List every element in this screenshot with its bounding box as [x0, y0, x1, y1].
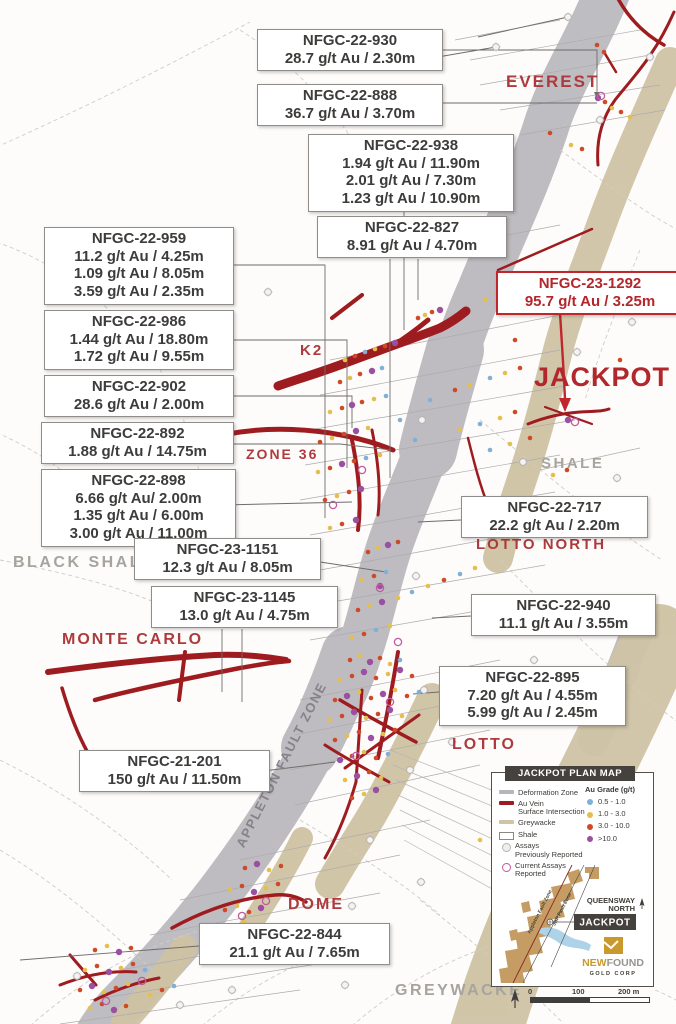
- greywacke-swatch-icon: [499, 820, 514, 824]
- assay-dot: [111, 1007, 117, 1013]
- callout-hole-id: NFGC-23-1292: [504, 275, 676, 293]
- callout-hole-id: NFGC-23-1145: [158, 589, 331, 607]
- assay-dot: [353, 428, 359, 434]
- assay-dot: [513, 338, 518, 343]
- callout-assay-line: 21.1 g/t Au / 7.65m: [206, 944, 383, 962]
- previous-assay-marker-icon: [627, 317, 636, 326]
- current-assay-marker-icon: [358, 466, 365, 473]
- callout-hole-id: NFGC-22-959: [51, 230, 227, 248]
- assay-dot: [353, 517, 359, 523]
- assay-dot: [513, 410, 518, 415]
- callout-NFGC-23-1292: NFGC-23-129295.7 g/t Au / 3.25m: [496, 271, 676, 315]
- assay-dot: [595, 43, 600, 48]
- assay-dot: [316, 470, 321, 475]
- assay-dot: [360, 400, 365, 405]
- callout-NFGC-22-930: NFGC-22-93028.7 g/t Au / 2.30m: [257, 29, 443, 71]
- assay-dot: [338, 678, 343, 683]
- legend-item-assay-prev: AssaysPreviously Reported: [499, 842, 585, 859]
- assay-dot: [380, 691, 386, 697]
- zone-label-dome: DOME: [288, 896, 344, 914]
- assay-dot: [378, 453, 383, 458]
- callout-hole-id: NFGC-22-986: [51, 313, 227, 331]
- assay-dot: [503, 371, 508, 376]
- assay-dot: [352, 459, 357, 464]
- current-assay-marker-icon: [571, 418, 578, 425]
- assay-dot: [373, 787, 379, 793]
- callout-assay-line: 1.88 g/t Au / 14.75m: [48, 443, 227, 461]
- callout-assay-line: 1.44 g/t Au / 18.80m: [51, 331, 227, 349]
- callout-assay-line: 11.1 g/t Au / 3.55m: [478, 615, 649, 633]
- callout-NFGC-23-1151: NFGC-23-115112.3 g/t Au / 8.05m: [134, 538, 321, 580]
- assay-dot: [338, 380, 343, 385]
- assay-dot: [362, 632, 367, 637]
- assay-dot: [106, 969, 112, 975]
- assay-dot: [340, 714, 345, 719]
- assay-dot: [93, 948, 98, 953]
- assay-dot: [347, 490, 352, 495]
- assay-dot: [361, 669, 367, 675]
- assay-dot: [258, 905, 264, 911]
- callout-hole-id: NFGC-22-902: [51, 378, 227, 396]
- assay-dot: [385, 542, 391, 548]
- legend-item-label: Greywacke: [518, 819, 556, 828]
- assay-dot: [410, 674, 415, 679]
- assay-dot: [172, 984, 177, 989]
- callout-assay-line: 13.0 g/t Au / 4.75m: [158, 607, 331, 625]
- assay-dot: [628, 115, 633, 120]
- callout-hole-id: NFGC-22-930: [264, 32, 436, 50]
- assay-dot: [374, 628, 379, 633]
- callout-hole-id: NFGC-22-844: [206, 926, 383, 944]
- assay-dot: [105, 944, 110, 949]
- assay-dot: [343, 358, 348, 363]
- callout-assay-line: 6.66 g/t Au/ 2.00m: [48, 490, 229, 508]
- assay-dot: [442, 578, 447, 583]
- assay-dot: [376, 712, 381, 717]
- assay-dot: [488, 376, 493, 381]
- assay-dot: [160, 988, 165, 993]
- legend-item-label: Shale: [518, 831, 537, 840]
- assay-dot: [368, 735, 374, 741]
- assay-dot: [380, 366, 385, 371]
- callout-assay-line: 12.3 g/t Au / 8.05m: [141, 559, 314, 577]
- assay-dot: [518, 366, 523, 371]
- previous-assay-marker-icon: [416, 877, 425, 886]
- callout-NFGC-22-892: NFGC-22-8921.88 g/t Au / 14.75m: [41, 422, 234, 464]
- assay-dot: [254, 861, 260, 867]
- vein-swatch-icon: [499, 801, 514, 805]
- callout-assay-line: 22.2 g/t Au / 2.20m: [468, 517, 641, 535]
- assay-dot: [247, 910, 252, 915]
- assay-dot: [398, 658, 403, 663]
- assay-dot: [358, 372, 363, 377]
- assay-dot: [102, 990, 107, 995]
- assay-dot: [453, 388, 458, 393]
- callout-NFGC-22-827: NFGC-22-8278.91 g/t Au / 4.70m: [317, 216, 507, 258]
- assay-dot: [569, 143, 574, 148]
- previous-assay-marker-icon: [612, 473, 621, 482]
- callout-hole-id: NFGC-22-938: [315, 137, 507, 155]
- assay-dot: [328, 410, 333, 415]
- assay-dot: [95, 964, 100, 969]
- previous-assay-marker-icon: [263, 287, 272, 296]
- assay-dot: [350, 796, 355, 801]
- north-arrow-icon: [508, 988, 522, 1010]
- callout-NFGC-22-940: NFGC-22-94011.1 g/t Au / 3.55m: [471, 594, 656, 636]
- legend-item-shale: Shale: [499, 831, 585, 840]
- grade-dot-icon: [587, 812, 593, 818]
- assay-dot: [356, 608, 361, 613]
- assay-dot: [383, 344, 388, 349]
- callout-assay-line: 8.91 g/t Au / 4.70m: [324, 237, 500, 255]
- inset-jackpot-badge-text: JACKPOT: [579, 918, 630, 929]
- assay-dot: [416, 316, 421, 321]
- zone-label-shale: SHALE: [541, 455, 604, 472]
- grade-range-label: >10.0: [598, 835, 617, 844]
- callout-NFGC-22-938: NFGC-22-9381.94 g/t Au / 11.90m2.01 g/t …: [308, 134, 514, 212]
- zone-label-everest: EVEREST: [506, 72, 599, 92]
- assay-dot: [228, 888, 233, 893]
- assay-dot: [335, 494, 340, 499]
- callout-assay-line: 1.35 g/t Au / 6.00m: [48, 507, 229, 525]
- assay-dot: [384, 570, 389, 575]
- assay-dot: [353, 354, 358, 359]
- assay-dot: [89, 983, 95, 989]
- assay-dot: [362, 792, 367, 797]
- assay-dot: [428, 398, 433, 403]
- assay-dot: [369, 368, 375, 374]
- assay-dot: [423, 313, 428, 318]
- assay-dot: [340, 406, 345, 411]
- assay-dot: [392, 340, 398, 346]
- callout-assay-line: 95.7 g/t Au / 3.25m: [504, 293, 676, 311]
- assay-dot: [276, 882, 281, 887]
- previous-assay-marker-icon: [227, 985, 236, 994]
- assay-dot: [366, 426, 371, 431]
- inset-north-arrow-icon: [640, 898, 645, 909]
- assay-dot: [333, 738, 338, 743]
- assay-dot: [528, 436, 533, 441]
- callout-assay-line: 5.99 g/t Au / 2.45m: [446, 704, 619, 722]
- callout-NFGC-22-959: NFGC-22-95911.2 g/t Au / 4.25m1.09 g/t A…: [44, 227, 234, 305]
- assay-dot: [148, 993, 153, 998]
- assay-dot: [129, 946, 134, 951]
- callout-assay-line: 1.23 g/t Au / 10.90m: [315, 190, 507, 208]
- scale-label-0: 0: [528, 987, 532, 996]
- assay-dot: [619, 110, 624, 115]
- assay-dot: [368, 604, 373, 609]
- assay-dot: [124, 1004, 129, 1009]
- zone-label-lotto-north: LOTTO NORTH: [476, 536, 606, 553]
- callout-assay-line: 2.01 g/t Au / 7.30m: [315, 172, 507, 190]
- assay-dot: [240, 884, 245, 889]
- assay-dot: [367, 659, 373, 665]
- callout-NFGC-22-898: NFGC-22-8986.66 g/t Au/ 2.00m1.35 g/t Au…: [41, 469, 236, 547]
- assay-dot: [363, 350, 368, 355]
- legend-item-vein: Au VeinSurface Intersection: [499, 800, 585, 817]
- assay-dot: [348, 376, 353, 381]
- assay-dot: [330, 436, 335, 441]
- previous-assay-marker-icon: [175, 1000, 184, 1009]
- callout-NFGC-22-986: NFGC-22-9861.44 g/t Au / 18.80m1.72 g/t …: [44, 310, 234, 370]
- assay-dot: [488, 448, 493, 453]
- callout-assay-line: 1.09 g/t Au / 8.05m: [51, 265, 227, 283]
- assay-dot: [328, 718, 333, 723]
- assay-dot: [387, 707, 393, 713]
- au-grade-item: >10.0: [585, 835, 649, 844]
- scale-label-100: 100: [572, 987, 585, 996]
- assay-dot: [358, 654, 363, 659]
- scale-bar-graphic: [530, 997, 650, 1003]
- assay-dot: [342, 432, 347, 437]
- assay-dot: [126, 982, 131, 987]
- callout-hole-id: NFGC-22-892: [48, 425, 227, 443]
- assay-dot: [343, 778, 348, 783]
- assay-dot: [337, 757, 343, 763]
- callout-hole-id: NFGC-23-1151: [141, 541, 314, 559]
- assay-dot: [367, 770, 372, 775]
- legend-item-label: AssaysPreviously Reported: [515, 842, 583, 859]
- assay-dot: [364, 456, 369, 461]
- legend-item-deformation: Deformation Zone: [499, 789, 585, 798]
- assay-dot: [386, 672, 391, 677]
- zone-label-zone-36: ZONE 36: [246, 446, 318, 462]
- zone-label-monte-carlo: MONTE CARLO: [62, 631, 203, 649]
- assay-dot: [437, 307, 443, 313]
- callout-hole-id: NFGC-22-895: [446, 669, 619, 687]
- assay-dot: [373, 347, 378, 352]
- assay-dot: [372, 574, 377, 579]
- scale-bar-labels: 0 100 200 m: [528, 987, 656, 996]
- assay-dot: [340, 522, 345, 527]
- au-grade-items: 0.5 - 1.01.0 - 3.03.0 - 10.0>10.0: [585, 798, 649, 843]
- assay-dot: [360, 578, 365, 583]
- callout-NFGC-21-201: NFGC-21-201150 g/t Au / 11.50m: [79, 750, 270, 792]
- scale-bar: 0 100 200 m: [506, 984, 656, 1014]
- previous-assay-marker-icon: [347, 901, 356, 910]
- assay-dot: [426, 584, 431, 589]
- zone-label-lotto: LOTTO: [452, 736, 516, 754]
- callout-hole-id: NFGC-22-717: [468, 499, 641, 517]
- assay-dot: [318, 440, 323, 445]
- assay-dot: [458, 572, 463, 577]
- assay-dot: [430, 310, 435, 315]
- assay-dot: [376, 546, 381, 551]
- newfound-subtext: GOLD CORP: [590, 971, 637, 977]
- jackpot-plan-map: NFGC-22-93028.7 g/t Au / 2.30mNFGC-22-88…: [0, 0, 676, 1024]
- current-assay-marker-icon: [394, 638, 401, 645]
- callout-assay-line: 7.20 g/t Au / 4.55m: [446, 687, 619, 705]
- assay-dot: [374, 756, 379, 761]
- callout-assay-line: 3.59 g/t Au / 2.35m: [51, 283, 227, 301]
- callout-hole-id: NFGC-22-940: [478, 597, 649, 615]
- inset-location-map: Appleton Fault Zone JBP Fault Zone JACKP…: [492, 863, 651, 985]
- au-grade-title: Au Grade (g/t): [585, 786, 649, 795]
- legend-title: JACKPOT PLAN MAP: [505, 766, 635, 781]
- deformation-swatch-icon: [499, 790, 514, 794]
- assay-dot: [333, 698, 338, 703]
- assay-dot: [354, 773, 360, 779]
- inset-jackpot-marker: [547, 919, 574, 925]
- grade-dot-icon: [587, 824, 593, 830]
- grade-dot-icon: [587, 799, 593, 805]
- assay-dot: [548, 131, 553, 136]
- assay-dot: [603, 100, 608, 105]
- assay-dot: [393, 688, 398, 693]
- callout-NFGC-22-844: NFGC-22-84421.1 g/t Au / 7.65m: [199, 923, 390, 965]
- callout-assay-line: 1.72 g/t Au / 9.55m: [51, 348, 227, 366]
- assay-dot: [350, 636, 355, 641]
- assay-prev-swatch-icon: [502, 843, 511, 852]
- newfound-wordmark: NEWFOUND: [582, 957, 644, 969]
- assay-dot: [267, 868, 272, 873]
- assay-dot: [384, 394, 389, 399]
- assay-dot: [381, 732, 386, 737]
- assay-dot: [478, 838, 483, 843]
- assay-dot: [357, 730, 362, 735]
- assay-dot: [323, 498, 328, 503]
- callout-NFGC-22-895: NFGC-22-8957.20 g/t Au / 4.55m5.99 g/t A…: [439, 666, 626, 726]
- assay-dot: [369, 696, 374, 701]
- assay-dot: [417, 690, 422, 695]
- assay-dot: [131, 962, 136, 967]
- callout-assay-line: 150 g/t Au / 11.50m: [86, 771, 263, 789]
- assay-dot: [143, 968, 148, 973]
- grade-range-label: 0.5 - 1.0: [598, 798, 626, 807]
- previous-assay-marker-icon: [529, 655, 538, 664]
- inset-queensway-line2: NORTH: [608, 904, 635, 913]
- assay-dot: [473, 566, 478, 571]
- assay-dot: [119, 966, 124, 971]
- zone-label-jackpot: JACKPOT: [534, 362, 670, 393]
- callout-assay-line: 36.7 g/t Au / 3.70m: [264, 105, 436, 123]
- assay-dot: [396, 540, 401, 545]
- assay-dot: [358, 486, 364, 492]
- newfound-logo-icon: [604, 937, 623, 954]
- assay-dot: [116, 949, 122, 955]
- au-grade-item: 3.0 - 10.0: [585, 822, 649, 831]
- assay-dot: [348, 658, 353, 663]
- assay-dot: [279, 864, 284, 869]
- assay-dot: [362, 750, 367, 755]
- assay-dot: [235, 904, 240, 909]
- assay-dot: [410, 590, 415, 595]
- assay-dot: [565, 417, 571, 423]
- assay-dot: [251, 889, 257, 895]
- assay-dot: [400, 714, 405, 719]
- callout-NFGC-22-888: NFGC-22-88836.7 g/t Au / 3.70m: [257, 84, 443, 126]
- legend-panel: JACKPOT PLAN MAP Deformation ZoneAu Vein…: [491, 772, 654, 987]
- assay-dot: [83, 968, 88, 973]
- assay-dot: [580, 147, 585, 152]
- assay-dot: [396, 596, 401, 601]
- callout-hole-id: NFGC-22-827: [324, 219, 500, 237]
- callout-hole-id: NFGC-22-898: [48, 472, 229, 490]
- assay-dot: [357, 690, 362, 695]
- assay-dot: [366, 550, 371, 555]
- assay-dot: [364, 716, 369, 721]
- inset-water-body: [539, 927, 591, 951]
- legend-item-greywacke: Greywacke: [499, 819, 585, 828]
- au-grade-item: 0.5 - 1.0: [585, 798, 649, 807]
- legend-title-text: JACKPOT PLAN MAP: [518, 768, 622, 779]
- callout-assay-line: 28.7 g/t Au / 2.30m: [264, 50, 436, 68]
- scale-label-200: 200 m: [618, 987, 639, 996]
- assay-dot: [602, 50, 607, 55]
- callout-hole-id: NFGC-21-201: [86, 753, 263, 771]
- assay-dot: [243, 866, 248, 871]
- assay-dot: [223, 908, 228, 913]
- grade-range-label: 3.0 - 10.0: [598, 822, 630, 831]
- assay-dot: [388, 624, 393, 629]
- assay-dot: [372, 397, 377, 402]
- assay-dot: [508, 442, 513, 447]
- assay-dot: [88, 1006, 93, 1011]
- assay-dot: [551, 473, 556, 478]
- assay-dot: [398, 418, 403, 423]
- inset-fault-line-red: [513, 865, 572, 983]
- callout-assay-line: 11.2 g/t Au / 4.25m: [51, 248, 227, 266]
- assay-dot: [374, 676, 379, 681]
- assay-dot: [458, 428, 463, 433]
- callout-NFGC-23-1145: NFGC-23-114513.0 g/t Au / 4.75m: [151, 586, 338, 628]
- au-grade-item: 1.0 - 3.0: [585, 810, 649, 819]
- shale-swatch-icon: [499, 832, 514, 840]
- assay-dot: [350, 674, 355, 679]
- assay-dot: [379, 599, 385, 605]
- assay-dot: [483, 298, 488, 303]
- assay-dot: [114, 986, 119, 991]
- grade-dot-icon: [587, 836, 593, 842]
- assay-dot: [388, 662, 393, 667]
- assay-dot: [328, 466, 333, 471]
- assay-dot: [328, 526, 333, 531]
- assay-dot: [498, 416, 503, 421]
- scale-bar-filled-half: [531, 998, 590, 1002]
- assay-dot: [393, 728, 398, 733]
- assay-dot: [610, 106, 615, 111]
- assay-dot: [344, 693, 350, 699]
- assay-dot: [478, 422, 483, 427]
- callout-NFGC-22-717: NFGC-22-71722.2 g/t Au / 2.20m: [461, 496, 648, 538]
- assay-dot: [378, 656, 383, 661]
- legend-item-label: Au VeinSurface Intersection: [518, 800, 585, 817]
- callout-NFGC-22-902: NFGC-22-90228.6 g/t Au / 2.00m: [44, 375, 234, 417]
- assay-dot: [405, 694, 410, 699]
- legend-item-label: Deformation Zone: [518, 789, 578, 798]
- assay-dot: [349, 402, 355, 408]
- assay-dot: [413, 438, 418, 443]
- assay-dot: [468, 383, 473, 388]
- assay-dot: [379, 776, 384, 781]
- callout-assay-line: 28.6 g/t Au / 2.00m: [51, 396, 227, 414]
- callout-assay-line: 1.94 g/t Au / 11.90m: [315, 155, 507, 173]
- assay-dot: [339, 461, 345, 467]
- zone-label-k2: K2: [300, 342, 323, 359]
- grade-range-label: 1.0 - 3.0: [598, 810, 626, 819]
- assay-dot: [78, 988, 83, 993]
- assay-dot: [345, 734, 350, 739]
- assay-dot: [351, 709, 357, 715]
- assay-dot: [264, 886, 269, 891]
- previous-assay-marker-icon: [340, 980, 349, 989]
- previous-assay-marker-icon: [411, 571, 420, 580]
- callout-hole-id: NFGC-22-888: [264, 87, 436, 105]
- assay-dot: [386, 752, 391, 757]
- assay-dot: [397, 667, 403, 673]
